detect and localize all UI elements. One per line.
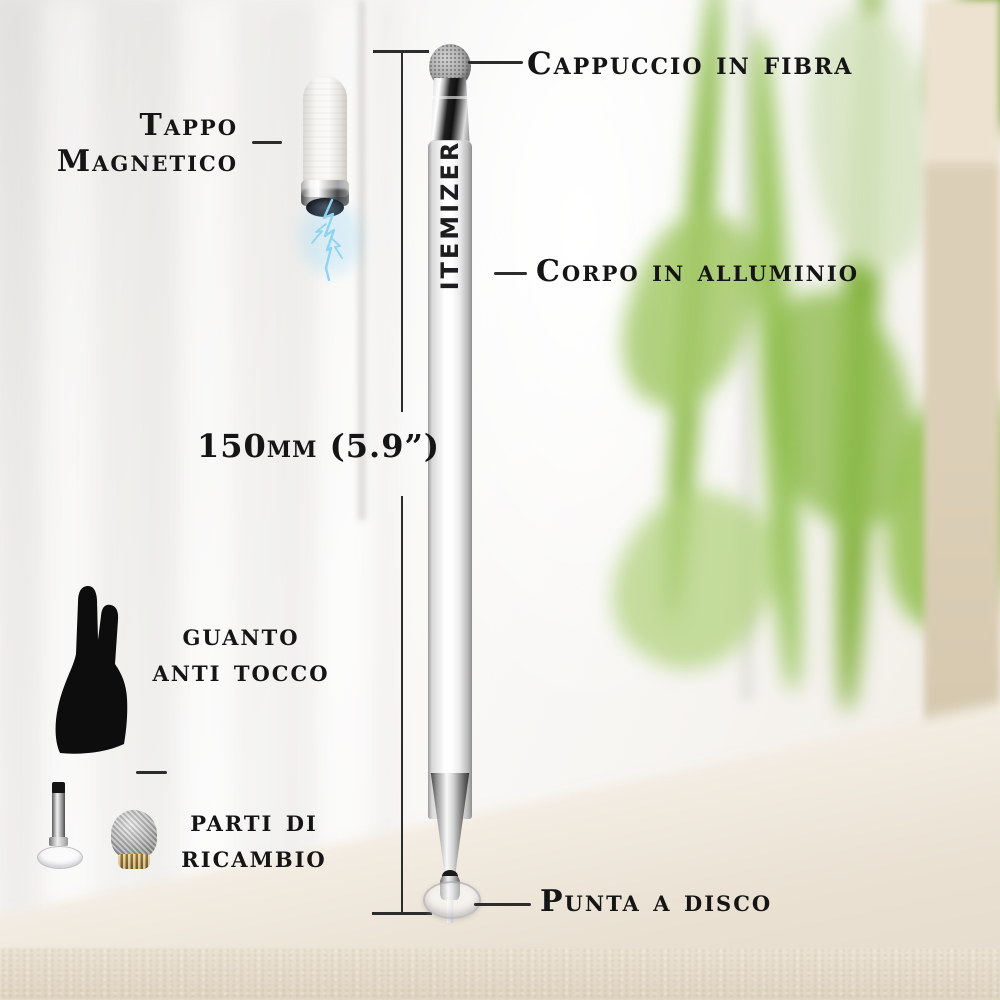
callout-line-magnetic-cap [252,141,282,144]
table-wood-texture [0,948,1000,1000]
callout-line-fiber-cap [468,61,523,64]
glove-image [45,572,145,757]
stylus-pen-image: ITEMIZER [428,44,472,924]
lightning-icon [298,198,362,282]
mesh-dome [111,810,157,859]
wall-strip [924,0,1000,740]
label-fiber-cap: Cappuccio in fibra [527,46,853,82]
spare-disc-tip-image [36,780,84,874]
label-disc-tip: Punta a disco [540,884,772,920]
label-magnetic-cap: Tappo Magnetico [57,108,238,180]
callout-line-glove [136,771,167,774]
brass-thread [118,854,150,869]
label-magnetic-cap-line1: Tappo [140,108,239,143]
label-length: 150mm (5.9”) [197,428,402,464]
label-aluminum-body: Corpo in alluminio [536,254,859,290]
label-spare-parts: parti di ricambio [181,804,326,876]
spare-pin-disc [37,846,83,869]
label-glove-line2: anti tocco [152,654,329,689]
spare-fiber-cap-image [110,810,158,872]
brand-logo: ITEMIZER [436,140,464,291]
measure-cap-bottom [372,912,432,915]
ferrule-seam [430,96,470,99]
measure-line-upper [401,52,403,412]
label-glove-line1: guanto [182,618,299,653]
magnetic-cap-body [303,76,347,188]
spare-pin-collar [49,837,68,846]
measure-line-lower [401,496,403,914]
label-spare-parts-line2: ricambio [181,840,326,875]
chrome-ferrule [430,78,470,142]
label-glove: guanto anti tocco [152,618,329,690]
disc-tip-image [423,881,481,919]
stylus-product-infographic: ITEMIZER Cappuccio in fibra Tappo Magnet… [0,0,1000,1000]
label-spare-parts-line1: parti di [190,804,318,839]
spare-pin-shaft [52,793,65,838]
callout-line-disc-tip [474,903,531,906]
label-magnetic-cap-line2: Magnetico [57,144,238,179]
callout-line-body [494,272,527,275]
